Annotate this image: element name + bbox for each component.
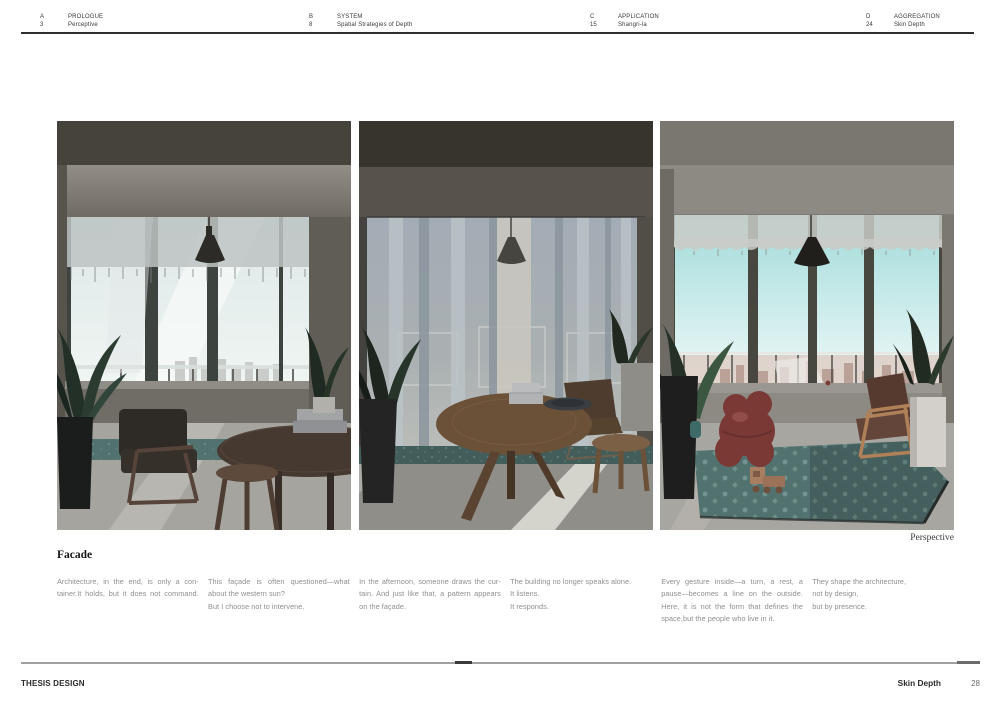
render-morning-valance <box>57 121 351 530</box>
bench-top <box>65 381 343 389</box>
plinth <box>910 397 946 467</box>
essay-line: about the western sun? <box>208 588 350 600</box>
section-letter: D <box>866 13 894 21</box>
essay-line: This façade is often questioned—what <box>208 576 350 588</box>
essay-line: not by design, <box>812 588 954 600</box>
essay-columns: Architecture, in the end, is only a con-… <box>57 576 954 626</box>
section-title: SYSTEM <box>337 13 412 21</box>
figure-caption: Perspective <box>57 533 954 543</box>
header-section-aggregation: D 24 AGGREGATION Skin Depth <box>866 13 940 29</box>
section-subtitle: Shangri-la <box>618 21 659 29</box>
essay-line: on the façade. <box>359 601 501 613</box>
render-2-art <box>359 121 653 530</box>
section-heading: Facade <box>57 549 92 561</box>
section-subtitle: Perceptive <box>68 21 103 29</box>
section-number: 24 <box>866 21 894 29</box>
essay-column-1: Architecture, in the end, is only a con-… <box>57 576 199 626</box>
essay-line: It responds. <box>510 601 652 613</box>
essay-column-2: This façade is often questioned—what abo… <box>208 576 350 626</box>
beam <box>660 165 954 215</box>
stacked-boxes <box>509 383 543 404</box>
header-section-system: B 8 SYSTEM Spatial Strategies of Depth <box>309 13 412 29</box>
render-curtain-drawn <box>359 121 653 530</box>
header-section-application: C 15 APPLICATION Shangri-la <box>590 13 659 29</box>
essay-column-3: In the afternoon, someone draws the cur-… <box>359 576 501 626</box>
plush-sculpture <box>715 391 775 467</box>
beam <box>359 167 653 217</box>
essay-line: In the afternoon, someone draws the cur- <box>359 576 501 588</box>
essay-line: The building no longer speaks alone. <box>510 576 652 588</box>
essay-line: but by presence. <box>812 601 954 613</box>
section-subtitle: Spatial Strategies of Depth <box>337 21 412 29</box>
page-number: 28 <box>971 679 980 688</box>
essay-line: Here, it is not the form that defines th… <box>661 601 803 613</box>
section-title: AGGREGATION <box>894 13 940 21</box>
ceiling <box>359 121 653 167</box>
white-pot <box>313 397 335 413</box>
header-section-prologue: A 3 PROLOGUE Perceptive <box>40 13 103 29</box>
floor-front <box>359 464 653 530</box>
essay-line: They shape the architecture, <box>812 576 954 588</box>
section-number: 15 <box>590 21 618 29</box>
section-title: APPLICATION <box>618 13 659 21</box>
plant-pot <box>57 417 93 509</box>
section-title: PROLOGUE <box>68 13 103 21</box>
essay-column-5: Every gesture inside—a turn, a rest, a p… <box>661 576 803 626</box>
essay-column-4: The building no longer speaks alone. It … <box>510 576 652 626</box>
essay-line: Every gesture inside—a turn, a rest, a <box>661 576 803 588</box>
essay-line: Architecture, in the end, is only a con- <box>57 576 199 588</box>
project-title: THESIS DESIGN <box>21 679 85 688</box>
render-3-art <box>660 121 954 530</box>
header-rule <box>21 32 974 34</box>
render-bright-day <box>660 121 954 530</box>
ceiling <box>660 121 954 165</box>
apple <box>826 381 831 386</box>
figure-row <box>57 121 954 530</box>
essay-line: pause—becomes a line on the outside. <box>661 588 803 600</box>
teal-vase <box>690 421 701 438</box>
section-letter: C <box>590 13 618 21</box>
document-page: A 3 PROLOGUE Perceptive B 8 SYSTEM Spati… <box>0 0 995 703</box>
render-1-art <box>57 121 351 530</box>
footer-rule-tick-right <box>957 661 980 664</box>
section-number: 8 <box>309 21 337 29</box>
section-letter: B <box>309 13 337 21</box>
essay-line: But I choose not to intervene. <box>208 601 350 613</box>
footer-rule <box>21 662 980 664</box>
beam <box>57 165 351 217</box>
essay-line: space,but the people who live in it. <box>661 613 803 625</box>
chapter-title: Skin Depth <box>898 678 941 688</box>
section-letter: A <box>40 13 68 21</box>
essay-line: tain. And just like that, a pattern appe… <box>359 588 501 600</box>
footer-rule-tick <box>455 661 472 664</box>
essay-line: It listens. <box>510 588 652 600</box>
ceiling <box>57 121 351 165</box>
essay-column-6: They shape the architecture, not by desi… <box>812 576 954 626</box>
essay-line: tainer.It holds, but it does not command… <box>57 588 199 600</box>
plant-pot <box>359 399 397 503</box>
section-subtitle: Skin Depth <box>894 21 940 29</box>
section-number: 3 <box>40 21 68 29</box>
planter <box>621 363 653 431</box>
dark-plate <box>544 398 592 411</box>
